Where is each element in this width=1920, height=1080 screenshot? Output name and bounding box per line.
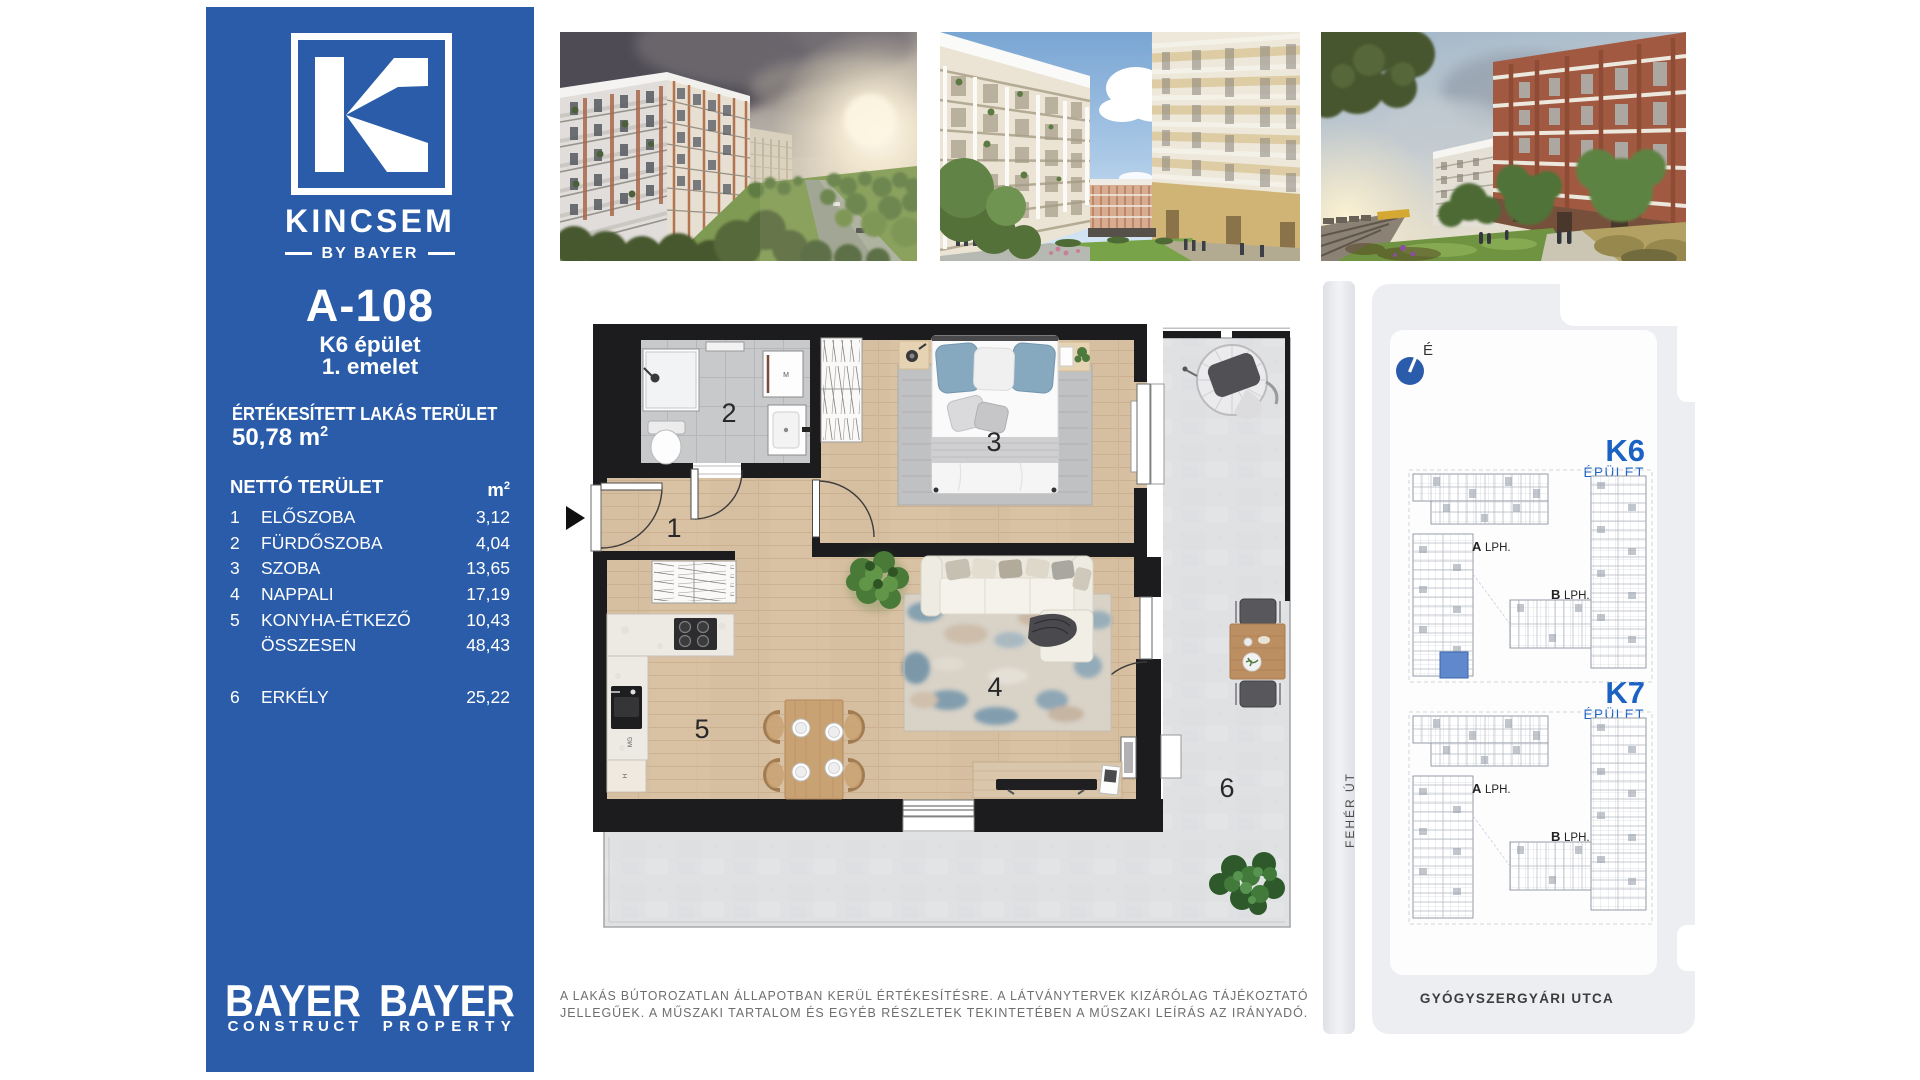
svg-text:GYÓGYSZERGYÁRI UTCA: GYÓGYSZERGYÁRI UTCA [1420,991,1614,1006]
svg-text:2: 2 [721,398,736,428]
svg-text:FEHÉR ÚT: FEHÉR ÚT [1342,772,1357,848]
svg-text:B LPH.: B LPH. [1551,829,1590,844]
svg-text:4: 4 [987,672,1002,702]
svg-text:H: H [622,773,629,778]
svg-text:5: 5 [694,714,709,744]
svg-text:B LPH.: B LPH. [1551,587,1590,602]
svg-text:3: 3 [986,427,1001,457]
svg-text:MG: MG [627,737,634,747]
svg-text:K7: K7 [1605,675,1645,710]
svg-text:6: 6 [1219,773,1234,803]
svg-text:A LPH.: A LPH. [1472,781,1511,796]
svg-text:A LPH.: A LPH. [1472,539,1511,554]
svg-text:1: 1 [666,513,681,543]
svg-text:É: É [1423,342,1433,359]
svg-text:K6: K6 [1605,433,1645,468]
svg-text:M: M [783,372,789,379]
